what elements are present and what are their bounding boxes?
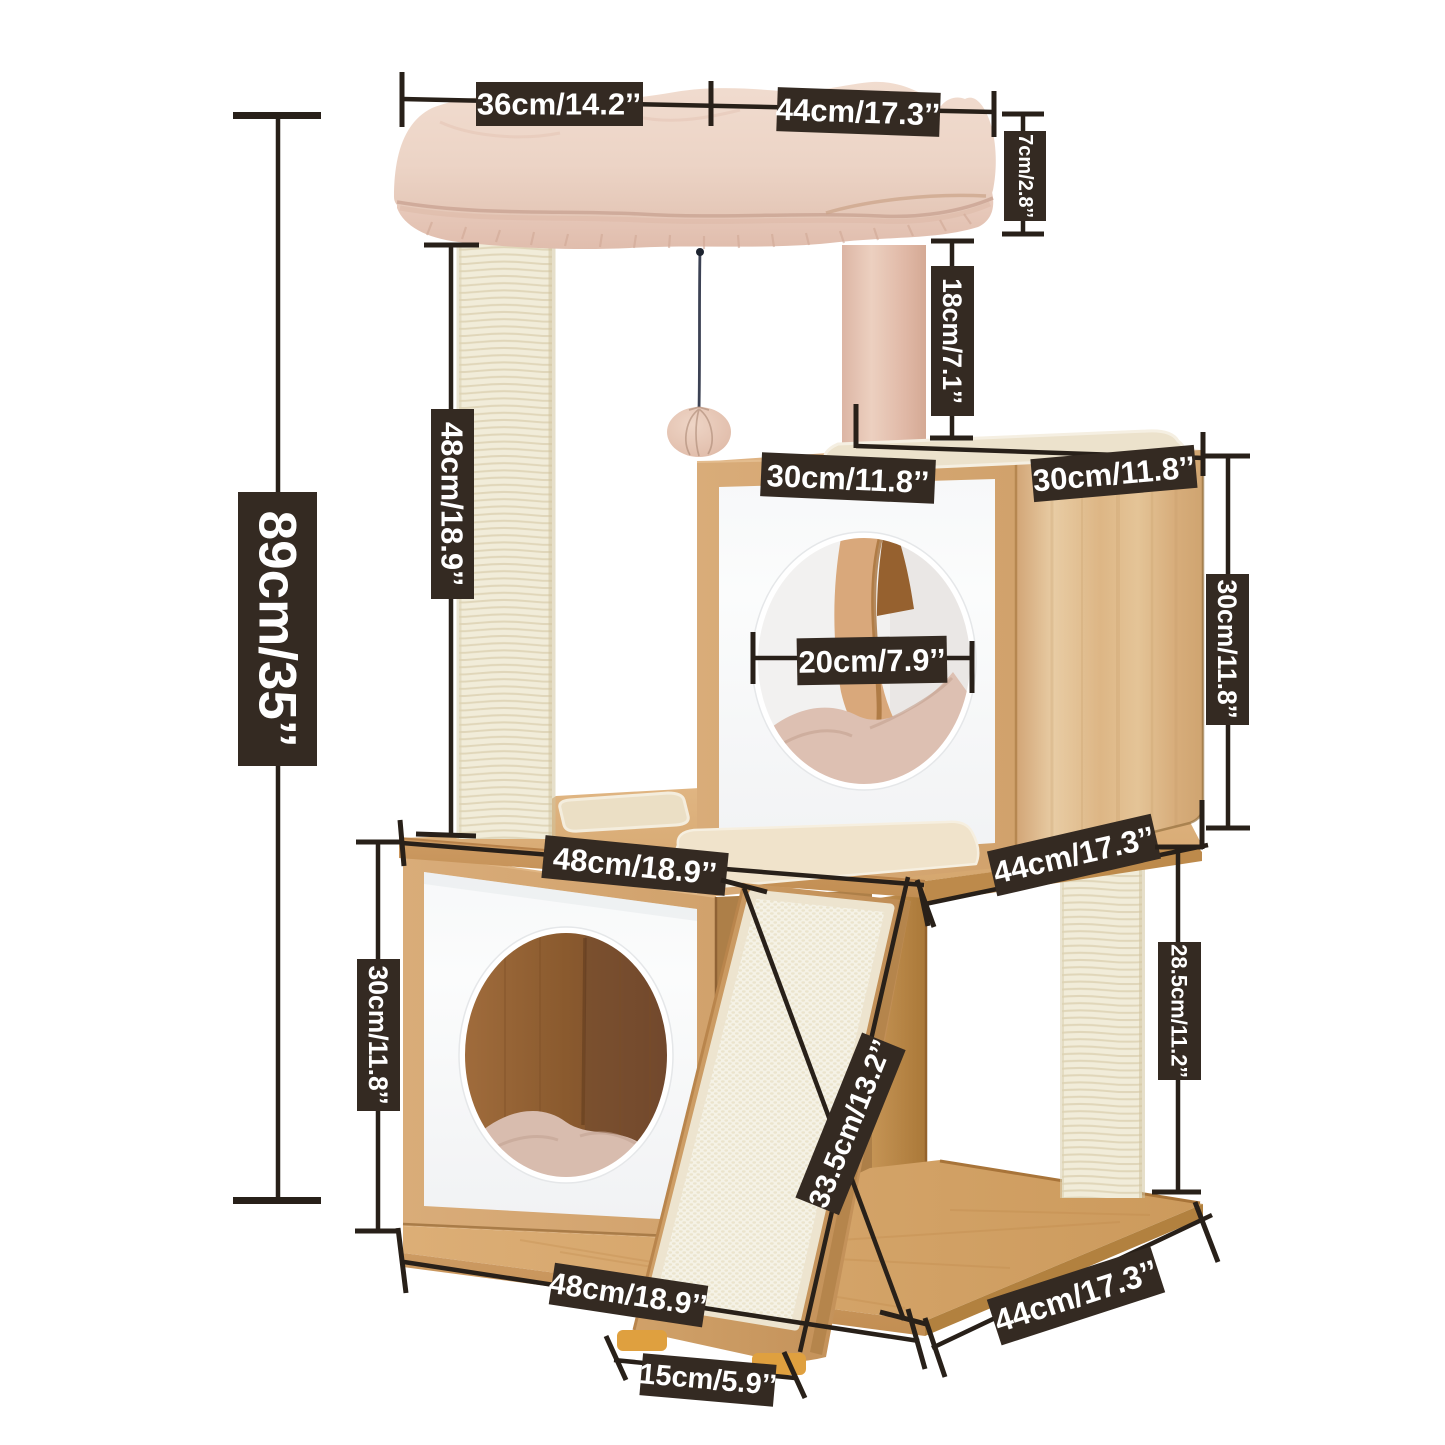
svg-text:89cm/35’’: 89cm/35’’ (248, 511, 307, 748)
svg-text:30cm/11.8’’: 30cm/11.8’’ (766, 458, 930, 500)
svg-text:44cm/17.3’’: 44cm/17.3’’ (775, 92, 940, 133)
svg-text:30cm/11.8’’: 30cm/11.8’’ (1212, 580, 1242, 719)
svg-text:36cm/14.2’’: 36cm/14.2’’ (477, 87, 641, 122)
svg-text:48cm/18.9’’: 48cm/18.9’’ (435, 422, 470, 586)
svg-text:7cm/2.8’’: 7cm/2.8’’ (1014, 134, 1036, 218)
svg-text:20cm/7.9’’: 20cm/7.9’’ (798, 642, 946, 680)
svg-text:28.5cm/11.2’’: 28.5cm/11.2’’ (1167, 944, 1192, 1078)
svg-text:18cm/7.1’’: 18cm/7.1’’ (937, 278, 967, 404)
svg-text:30cm/11.8’’: 30cm/11.8’’ (363, 966, 393, 1105)
